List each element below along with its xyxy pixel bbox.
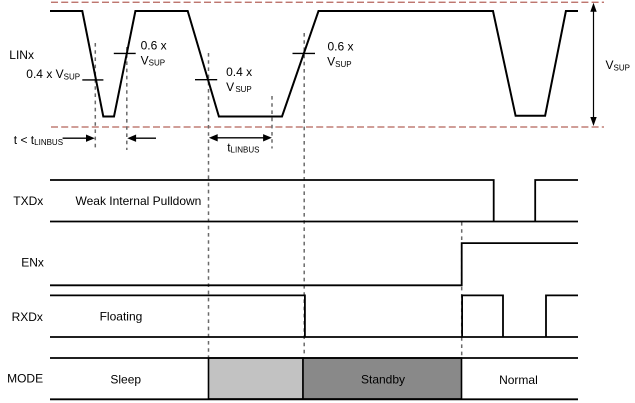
svg-text:VSUP: VSUP [141,53,165,67]
svg-text:TXDx: TXDx [13,194,43,208]
svg-text:MODE: MODE [7,372,43,386]
svg-text:VSUP: VSUP [226,80,252,94]
svg-text:Weak Internal Pulldown: Weak Internal Pulldown [76,194,202,208]
svg-text:Sleep: Sleep [110,372,141,386]
svg-text:Normal: Normal [499,373,538,387]
svg-text:ENx: ENx [21,256,44,270]
svg-text:0.6 x: 0.6 x [328,40,354,54]
svg-text:RXDx: RXDx [12,310,43,324]
svg-text:VSUP: VSUP [606,58,630,73]
svg-text:tLINBUS: tLINBUS [227,141,259,155]
svg-text:0.6 x: 0.6 x [141,39,167,53]
svg-text:Floating: Floating [100,310,143,324]
svg-text:0.4 x VSUP: 0.4 x VSUP [26,67,80,81]
svg-text:Standby: Standby [361,373,405,387]
svg-text:t < tLINBUS: t < tLINBUS [14,133,63,147]
svg-text:0.4 x: 0.4 x [226,65,252,79]
svg-text:LINx: LINx [9,48,34,62]
svg-text:VSUP: VSUP [327,55,351,69]
